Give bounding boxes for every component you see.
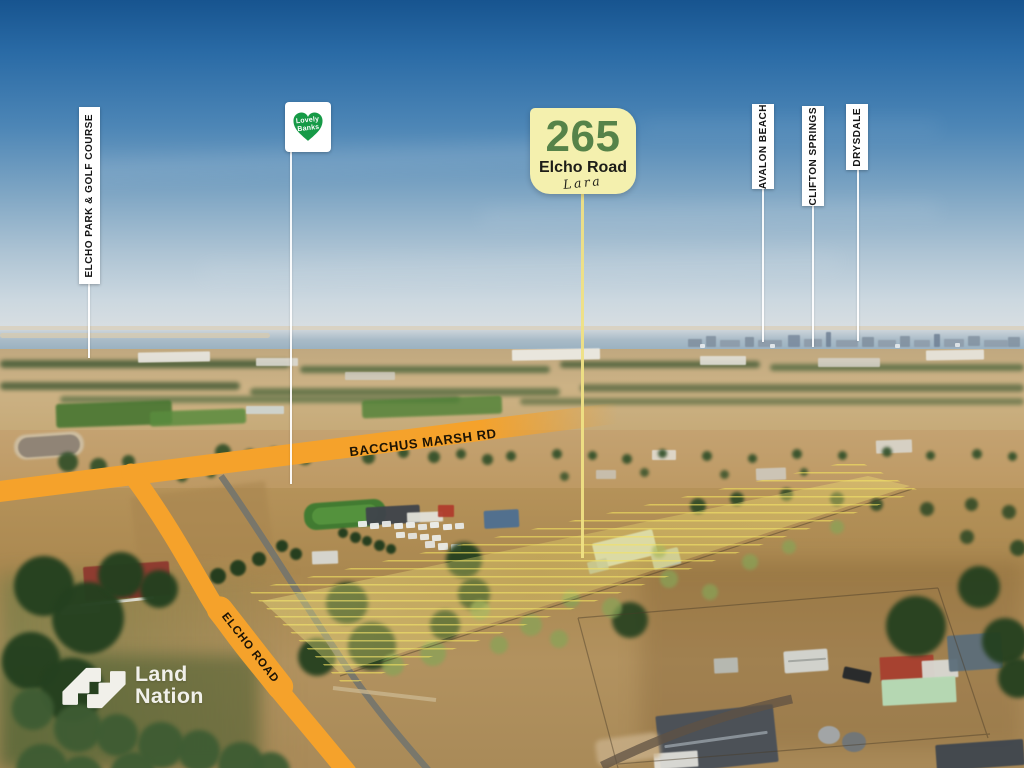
badge-leader-line [581,193,584,558]
leader-line-drysdale [857,170,859,341]
roads-and-fences-overlay [0,0,1024,768]
location-label-drysdale: DRYSDALE [846,104,868,170]
location-label-text: ELCHO PARK & GOLF COURSE [84,114,95,277]
property-address-badge: 265 Elcho Road Lara [530,108,636,194]
location-label-avalon-beach: AVALON BEACH [752,104,774,189]
aerial-photo-scene: BACCHUS MARSH RD ELCHO ROAD ELCHO PARK &… [0,0,1024,768]
leader-line-elcho-park [88,284,90,358]
fence-line [578,588,990,768]
location-label-text: CLIFTON SPRINGS [808,107,819,205]
leader-line-lovely-banks [290,151,292,484]
brand-line2: Nation [135,685,204,707]
street-number: 265 [546,115,621,159]
brand-wordmark: Land Nation [135,663,204,708]
farm-track [333,688,436,700]
location-label-clifton-springs: CLIFTON SPRINGS [802,106,824,206]
driveway [602,699,792,766]
leader-line-avalon-beach [762,189,764,342]
bacchus-marsh-road-overlay [0,413,618,493]
land-nation-logo: Land Nation [62,663,204,713]
landnation-monogram-icon [62,663,126,713]
leader-line-clifton-springs [812,206,814,347]
suburb-script: Lara [563,173,604,192]
location-label-text: DRYSDALE [852,108,863,167]
location-label-text: AVALON BEACH [758,104,769,189]
brand-line1: Land [135,663,204,685]
lovely-banks-flag: Lovely Banks [285,102,331,152]
location-label-elcho-park: ELCHO PARK & GOLF COURSE [79,107,100,284]
